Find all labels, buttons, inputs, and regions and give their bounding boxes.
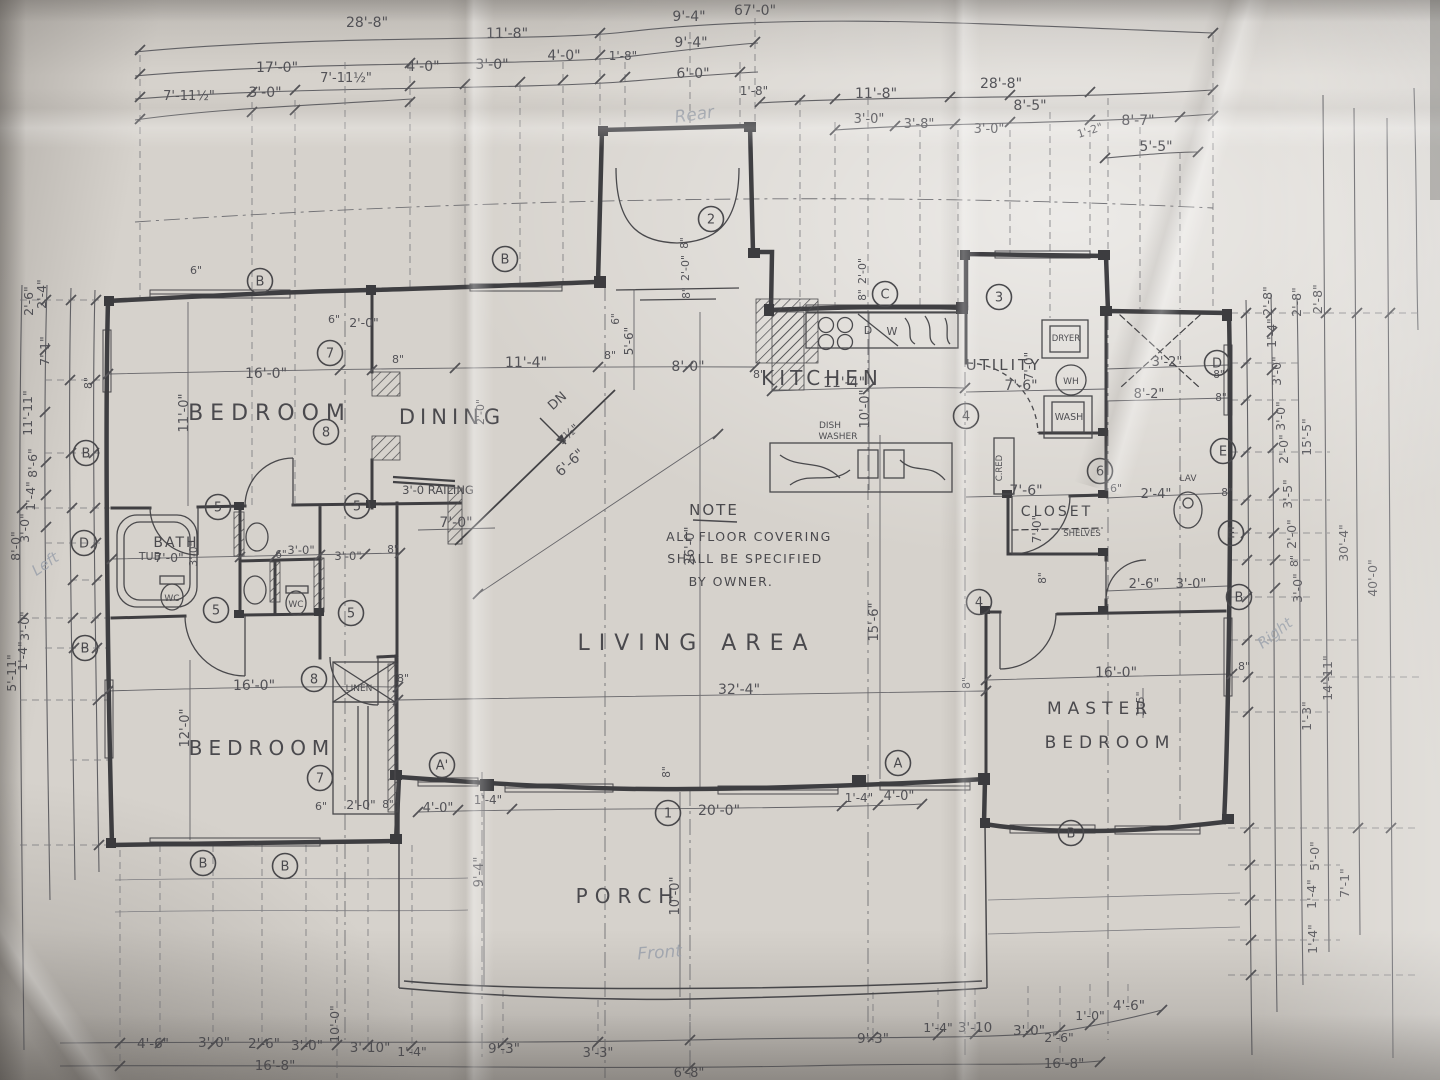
dim-label: 9'-3" bbox=[857, 1031, 889, 1047]
dim-label: 8" bbox=[1215, 392, 1227, 404]
room-label: PORCH bbox=[576, 884, 681, 908]
dim-label: 3'-8" bbox=[904, 117, 935, 132]
note-title: NOTE bbox=[689, 501, 739, 519]
marker-label: 5 bbox=[353, 500, 361, 515]
note-line: ALL FLOOR COVERING bbox=[666, 529, 832, 544]
dim-label: 1'-4" bbox=[1264, 318, 1279, 348]
pencil-label: Rear bbox=[673, 102, 716, 127]
dim-label: 4'-6" bbox=[1113, 998, 1145, 1014]
room-label: BEDROOM bbox=[189, 736, 335, 760]
dim-label: 3'-5" bbox=[1280, 479, 1295, 509]
dim-label: 6'-8" bbox=[674, 1066, 705, 1080]
marker-label: 8 bbox=[310, 673, 318, 688]
dim-label: 8" bbox=[960, 677, 973, 689]
marker-label: B bbox=[1235, 591, 1244, 606]
dim-label: 6" bbox=[275, 549, 287, 561]
dim-label: 67'-0" bbox=[734, 3, 776, 19]
marker-label: B bbox=[1067, 827, 1076, 842]
fixture-label: WC bbox=[288, 600, 303, 610]
extension-lines-layer bbox=[20, 18, 1420, 1078]
dim-label: 16'-0" bbox=[233, 678, 275, 694]
fixture-label: DN bbox=[545, 389, 570, 413]
room-label: KITCHEN bbox=[761, 366, 883, 390]
dim-label: 1'-4" bbox=[23, 481, 38, 511]
dim-label: 3'-0" bbox=[1273, 401, 1288, 431]
fixture-label: C.RED bbox=[995, 454, 1005, 481]
dim-label: 17'-0" bbox=[256, 60, 298, 76]
dim-label: 2'-8" bbox=[1260, 286, 1275, 316]
dim-label: 3'-0" bbox=[248, 85, 281, 101]
marker-label: 4 bbox=[975, 596, 983, 611]
dim-label: 7'-11½" bbox=[163, 89, 215, 104]
marker-label: 5 bbox=[212, 604, 220, 619]
dim-label: 3'-0" bbox=[854, 112, 885, 127]
dim-label: 9'-3" bbox=[488, 1041, 520, 1057]
dim-label: 1'-4" bbox=[397, 1044, 427, 1059]
dim-label: 3'-0" bbox=[1176, 577, 1207, 592]
dim-label: 1'-0" bbox=[1075, 1008, 1105, 1023]
dim-label: 6'-6" bbox=[553, 446, 588, 480]
dim-label: 6" bbox=[315, 800, 327, 813]
marker-label: 5 bbox=[214, 501, 222, 516]
marker-label: 2 bbox=[707, 213, 715, 228]
dim-label: 14'-11" bbox=[1320, 655, 1335, 701]
room-label: LIVING AREA bbox=[577, 631, 816, 656]
marker-label: B bbox=[81, 642, 90, 657]
dim-label: 1'-8" bbox=[740, 84, 768, 98]
marker-label: 3 bbox=[995, 291, 1003, 306]
dim-label: 6'-0" bbox=[676, 66, 709, 82]
dim-label: 8" bbox=[397, 672, 409, 685]
dim-label: 8" bbox=[392, 353, 404, 366]
dim-label: 16'-0" bbox=[245, 366, 287, 382]
dim-label: 3'-0" bbox=[475, 57, 508, 73]
dim-label: 7'-6" bbox=[1009, 483, 1042, 499]
dim-label: 40'-0" bbox=[1365, 559, 1380, 597]
dim-label: 11'-4" bbox=[505, 355, 547, 371]
room-label: BATH bbox=[153, 535, 198, 551]
dim-label: 28'-8" bbox=[346, 15, 388, 31]
dim-label: 1'-4" bbox=[845, 791, 873, 805]
marker-label: 8 bbox=[322, 426, 330, 441]
dim-label: 9'-4" bbox=[672, 9, 705, 25]
dim-label: 16'-8" bbox=[255, 1058, 296, 1074]
dim-label: 8" bbox=[1037, 572, 1049, 584]
dim-label: 4'-0" bbox=[884, 789, 915, 804]
dim-label: 7'-0" bbox=[439, 515, 472, 531]
dim-label: 2'-6" bbox=[1044, 1030, 1074, 1045]
dim-label: 2'-0" bbox=[679, 255, 692, 281]
marker-label: E bbox=[1227, 527, 1235, 542]
dim-label: 2'-8" bbox=[1310, 284, 1325, 314]
marker-label: D bbox=[1212, 357, 1222, 372]
dim-label: 9'-4" bbox=[674, 35, 707, 51]
dim-label: 8'-5" bbox=[1013, 98, 1046, 114]
marker-label: B bbox=[82, 447, 91, 462]
room-label: UTILITY bbox=[966, 356, 1043, 374]
dim-label: 1'-4" bbox=[1305, 924, 1320, 954]
dim-label: 8" bbox=[604, 349, 616, 362]
dim-label: 3'-0" bbox=[334, 549, 361, 563]
marker-label: E bbox=[1219, 445, 1227, 460]
floor-plan-svg: 28'-8"11'-8"17'-0"4'-0"3'-0"4'-0"7'-11½"… bbox=[0, 0, 1440, 1080]
fixture-label: WC bbox=[164, 594, 179, 604]
dim-label: 9'-4" bbox=[472, 857, 487, 888]
dim-label: 8" bbox=[661, 766, 673, 778]
dim-label: 2'-0" bbox=[1284, 519, 1299, 549]
dim-label: 16'-0" bbox=[1095, 665, 1137, 681]
dim-label: 10'-0" bbox=[858, 389, 873, 428]
dim-label: 3'-0" bbox=[17, 611, 32, 641]
dim-label: 8'-6" bbox=[25, 448, 40, 478]
marker-label: 7 bbox=[326, 347, 334, 362]
room-label: BEDROOM bbox=[1045, 733, 1176, 753]
marker-label: 7 bbox=[316, 772, 324, 787]
marker-label: B bbox=[501, 253, 510, 268]
dim-label: 3'-10" bbox=[350, 1040, 391, 1056]
dim-label: 7'-1" bbox=[37, 336, 52, 366]
dim-label: 3'-0" bbox=[974, 122, 1005, 137]
fixture-label: DISH bbox=[819, 421, 841, 431]
dim-label: 3'-0" bbox=[1269, 356, 1284, 386]
dim-label: 20'-0" bbox=[698, 803, 740, 819]
dim-label: 8'-0" bbox=[671, 359, 704, 375]
dim-label: 3'-2" bbox=[1152, 355, 1183, 370]
fixture-label: WASH bbox=[1055, 412, 1084, 423]
marker-label: 1 bbox=[664, 807, 672, 822]
dim-label: 3'-3" bbox=[583, 1046, 614, 1061]
dim-label: 4'-0" bbox=[547, 48, 580, 64]
dim-label: 8'-2" bbox=[1134, 387, 1165, 402]
dim-label: 8'-7" bbox=[1121, 113, 1154, 129]
dim-label: 8'-0" bbox=[8, 531, 23, 561]
note-line: BY OWNER. bbox=[689, 574, 774, 589]
room-label: MASTER bbox=[1047, 699, 1153, 719]
dim-label: 11'-8" bbox=[486, 26, 528, 42]
dim-label: 5'-11" bbox=[4, 654, 19, 692]
marker-label: A bbox=[894, 757, 903, 772]
dim-label: 2'-8" bbox=[1289, 287, 1304, 317]
dim-label: 1'-3" bbox=[1299, 701, 1314, 731]
fixture-label: D bbox=[864, 324, 872, 337]
marker-label: 6 bbox=[1096, 465, 1104, 480]
dim-label: 16'-8" bbox=[1044, 1056, 1085, 1072]
marker-label: A' bbox=[436, 759, 448, 774]
dim-label: 6" bbox=[328, 313, 340, 326]
fixture-label: 3'-0 RAILING bbox=[402, 483, 474, 497]
room-label: CLOSET bbox=[1021, 504, 1093, 520]
dim-label: 15'-5" bbox=[1299, 418, 1314, 456]
dim-label: 7'-1" bbox=[1337, 868, 1352, 898]
dim-label: 6" bbox=[610, 313, 622, 325]
blueprint-photo: 28'-8"11'-8"17'-0"4'-0"3'-0"4'-0"7'-11½"… bbox=[0, 0, 1440, 1080]
dim-label: 8" bbox=[681, 287, 693, 299]
dim-label: 4'-0" bbox=[423, 801, 454, 816]
marker-label: C bbox=[880, 288, 889, 303]
dim-label: 2'-4" bbox=[1141, 487, 1172, 502]
dim-label: 4'-0" bbox=[406, 59, 439, 75]
porch-outline bbox=[399, 779, 987, 999]
dim-label: 8" bbox=[1238, 660, 1250, 673]
room-label: DINING bbox=[399, 405, 505, 429]
pencil-label: Front bbox=[637, 941, 684, 964]
dim-label: 5'-5" bbox=[1139, 139, 1172, 155]
dim-label: 1'-4" bbox=[923, 1020, 953, 1035]
fixture-label: WASHER bbox=[819, 432, 858, 442]
dim-label: 3'-0" bbox=[198, 1035, 230, 1051]
dim-label: 8" bbox=[679, 237, 691, 249]
dim-label: 32'-4" bbox=[718, 682, 760, 698]
dim-label: 6" bbox=[1110, 482, 1122, 495]
dim-label: 3'-0" bbox=[1290, 573, 1305, 603]
door-arcs bbox=[150, 168, 1146, 705]
fixture-label: DRYER bbox=[1052, 334, 1080, 344]
dim-label: 8" bbox=[1221, 487, 1233, 499]
fixture-label: SHELVES bbox=[1063, 529, 1101, 539]
dim-label: 4'-6" bbox=[137, 1036, 169, 1052]
dim-label: 3'-0" bbox=[1013, 1023, 1045, 1039]
fixture-label: TUB bbox=[138, 550, 161, 563]
pencil-notes-layer: RearFrontLeftRight bbox=[28, 102, 1297, 964]
marker-label: B bbox=[199, 857, 208, 872]
fixture-label: W bbox=[887, 325, 898, 338]
dim-label: 28'-8" bbox=[980, 76, 1022, 92]
dim-label: 3'-10 bbox=[958, 1020, 992, 1036]
marker-label: 4 bbox=[962, 410, 970, 425]
dim-label: 11'-8" bbox=[855, 86, 897, 102]
dim-label: 2'-6" bbox=[248, 1036, 280, 1052]
dim-label: 8" bbox=[82, 377, 95, 389]
dim-label: 2'-0" bbox=[349, 315, 379, 330]
dim-label: 10'-0" bbox=[327, 1005, 342, 1043]
fixture-label: WH bbox=[1063, 377, 1079, 387]
dim-label: 3'-0" bbox=[291, 1038, 323, 1054]
dim-label: 8" bbox=[857, 289, 869, 301]
marker-label: B bbox=[256, 275, 265, 290]
dim-label: 15'-6" bbox=[867, 602, 882, 641]
dim-label: 11'-11" bbox=[20, 390, 35, 436]
dim-label: 6" bbox=[190, 264, 202, 277]
dim-label: 2'-0" bbox=[856, 258, 869, 284]
dim-label: 1'-8" bbox=[609, 49, 637, 63]
dim-label: 1'-4" bbox=[1304, 879, 1319, 909]
dim-label: 2'-6" bbox=[1129, 577, 1160, 592]
dim-label: 8" bbox=[1288, 555, 1301, 567]
dim-label: 8" bbox=[387, 544, 399, 556]
dim-label: 8" bbox=[382, 799, 394, 811]
dim-label: 1'-2" bbox=[1076, 120, 1105, 140]
room-label: BEDROOM bbox=[188, 401, 352, 426]
dim-label: 1'-4" bbox=[474, 793, 502, 807]
dim-label: 7'-11½" bbox=[320, 71, 372, 86]
dim-label: 2'-4" bbox=[34, 279, 49, 309]
dim-label: 2'-0" bbox=[346, 797, 376, 812]
marker-label: 5 bbox=[347, 607, 355, 622]
dim-label: 30'-4" bbox=[1336, 524, 1351, 562]
dim-label: 5'-6" bbox=[622, 327, 636, 355]
marker-label: D bbox=[79, 537, 89, 552]
note-line: SHALL BE SPECIFIED bbox=[667, 551, 822, 566]
pencil-label: Right bbox=[1254, 613, 1297, 652]
dim-label: 2'-0" bbox=[1276, 434, 1291, 464]
fixture-label: LINEN bbox=[346, 684, 373, 694]
marker-label: B bbox=[281, 860, 290, 875]
dim-label: 3'-0" bbox=[287, 543, 314, 557]
fixture-label: LAV bbox=[1180, 474, 1198, 484]
dim-label: 5'-0" bbox=[1307, 841, 1322, 871]
